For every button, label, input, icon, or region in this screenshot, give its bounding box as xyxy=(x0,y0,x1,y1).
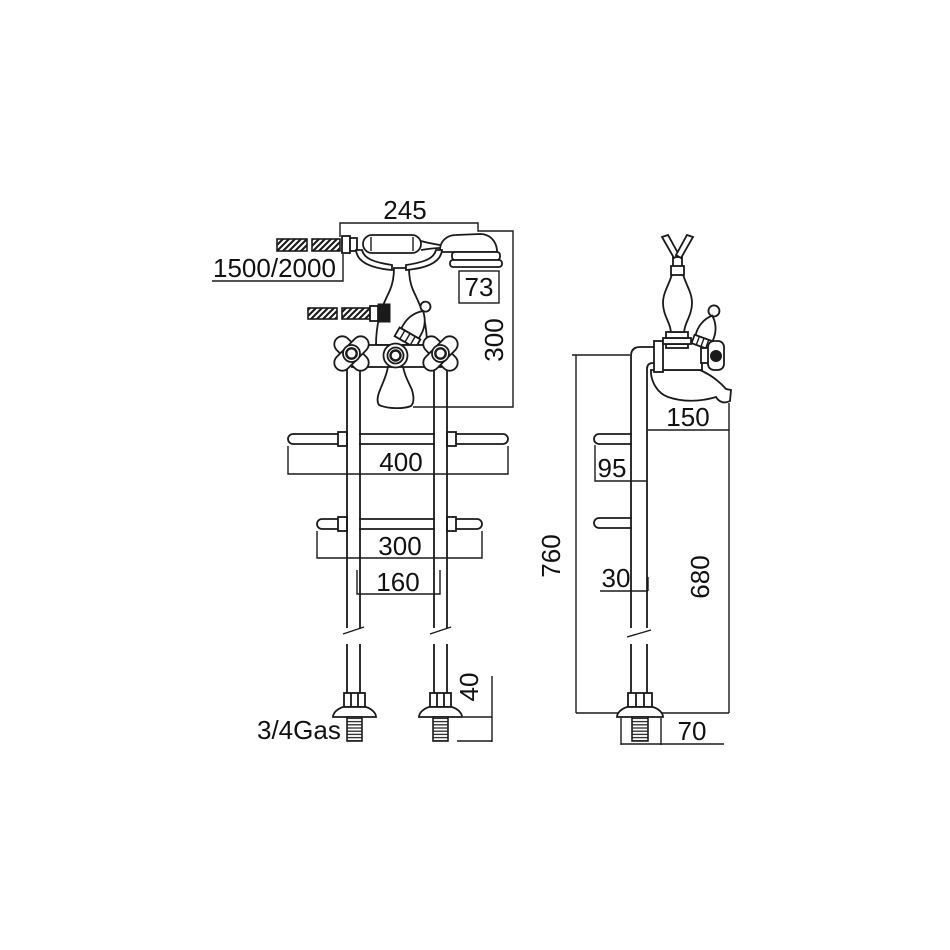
side-pipe xyxy=(627,347,658,693)
front-supply-pipes xyxy=(343,367,451,693)
pipe-break-marks xyxy=(343,627,451,634)
dim-760-line xyxy=(572,355,630,713)
technical-drawing-page: 245 1500/2000 73 300 400 300 160 40 3/4G… xyxy=(0,0,950,950)
dim-label-680: 680 xyxy=(685,555,715,598)
side-spout xyxy=(651,370,731,402)
dim-label-95: 95 xyxy=(598,453,627,483)
side-view xyxy=(594,235,731,741)
dim-label-300-height: 300 xyxy=(479,318,509,361)
dim-label-hose-length: 1500/2000 xyxy=(213,253,336,283)
dim-label-70: 70 xyxy=(678,716,707,746)
lower-shower-hose xyxy=(308,304,390,322)
side-connector xyxy=(617,693,663,741)
hose-nut xyxy=(378,304,390,322)
body-collar xyxy=(654,341,663,372)
cradle-baluster xyxy=(663,274,692,332)
dim-label-thread-size: 3/4Gas xyxy=(257,715,341,745)
dim-label-760: 760 xyxy=(536,534,566,577)
front-view xyxy=(277,234,508,741)
threaded-stud xyxy=(347,717,362,741)
dim-label-40: 40 xyxy=(454,673,484,702)
pipe-break-mark xyxy=(627,630,651,637)
column-rings xyxy=(663,332,691,348)
dim-label-30: 30 xyxy=(602,563,631,593)
cradle-fork xyxy=(662,235,693,258)
dim-label-160: 160 xyxy=(376,567,419,597)
faucet-dimension-drawing: 245 1500/2000 73 300 400 300 160 40 3/4G… xyxy=(0,0,950,950)
front-upper-bracket xyxy=(288,432,508,446)
dim-label-300-bracket: 300 xyxy=(378,531,421,561)
threaded-stud xyxy=(632,717,648,741)
dim-label-73: 73 xyxy=(465,272,494,302)
dim-label-400: 400 xyxy=(379,447,422,477)
upper-shower-hose xyxy=(277,236,357,253)
front-lower-bracket xyxy=(317,517,482,531)
center-boss xyxy=(384,344,408,368)
handshower-head xyxy=(440,234,497,252)
front-spout xyxy=(378,366,414,408)
dim-label-245: 245 xyxy=(383,195,426,225)
dim-label-150: 150 xyxy=(666,402,709,432)
threaded-stud xyxy=(433,717,448,741)
